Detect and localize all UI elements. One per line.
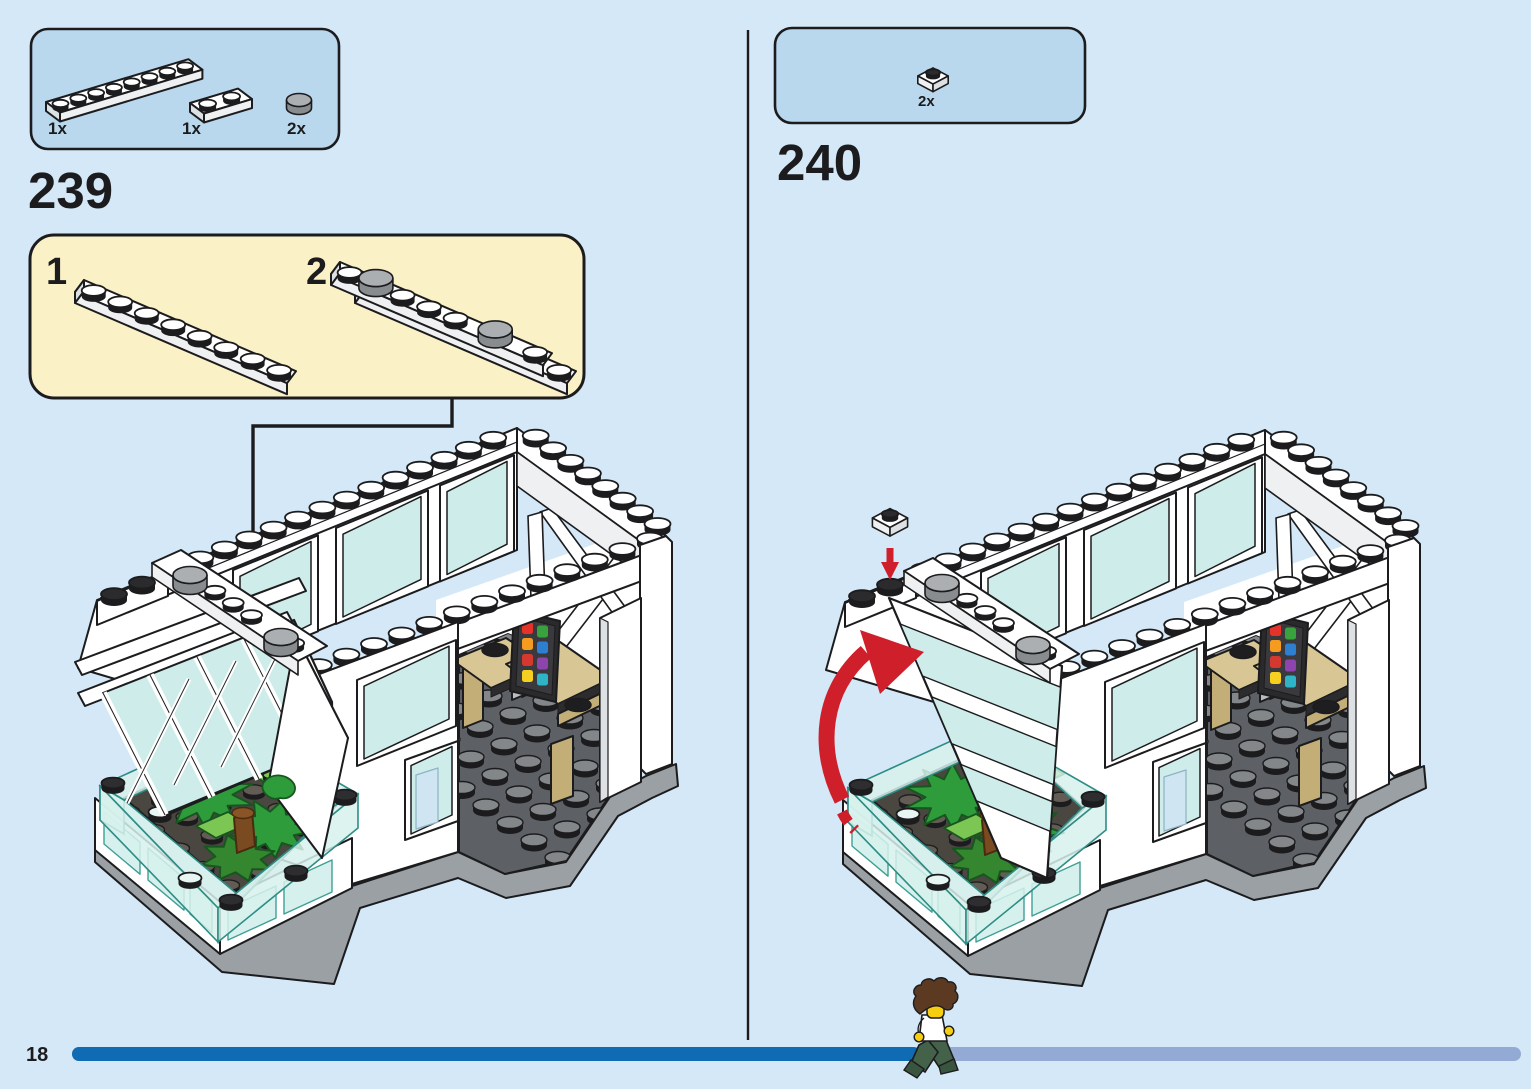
- svg-text:2: 2: [306, 251, 327, 293]
- svg-text:18: 18: [26, 1044, 48, 1066]
- svg-text:1: 1: [46, 251, 67, 293]
- svg-text:2x: 2x: [287, 119, 306, 138]
- svg-text:1x: 1x: [182, 119, 201, 138]
- svg-text:1x: 1x: [48, 119, 67, 138]
- svg-text:2x: 2x: [918, 93, 935, 110]
- svg-text:239: 239: [28, 162, 113, 219]
- svg-text:240: 240: [777, 134, 862, 191]
